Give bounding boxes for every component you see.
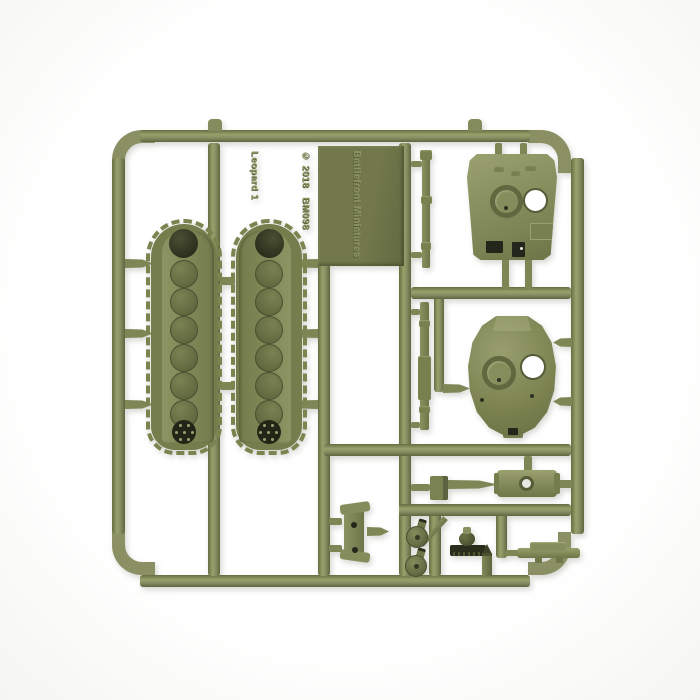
gate [443,384,470,393]
mg-sight [463,527,471,534]
bustle-notch [508,428,518,435]
drive-sprocket [172,420,196,444]
road-wheel [255,260,283,288]
track-run-right [236,224,302,450]
periscope [525,165,536,171]
travel-lock-foot [556,557,563,563]
detail-dot [480,398,484,402]
road-wheel [170,316,198,344]
storage-bin [497,470,557,497]
crew-hatch-lower [405,555,427,577]
frame-bar-right [571,158,584,534]
periscope [494,166,504,172]
gate [553,338,572,347]
turret-top [468,316,556,436]
brand-text: Battlefront Miniatures [348,151,365,263]
gate [411,252,422,258]
sprue-nub-left [208,119,222,131]
commander-cupola-ring [490,185,523,218]
gate [411,309,420,315]
shell-body [482,553,492,576]
gate [367,527,389,536]
engine-panel [530,223,555,240]
gate [411,161,422,167]
open-hatch-hole [523,188,548,213]
intake-grille [512,242,525,257]
frame-corner-bl [112,532,155,575]
sprue-nub-right [468,119,482,131]
hull-top-panel [467,154,557,260]
idler-wheel [169,229,198,258]
gate [411,422,420,428]
intake-grille [486,241,503,253]
barrel-band [420,150,432,160]
frame-bar-left [112,158,125,534]
gate [553,397,572,406]
runner-mid [318,258,330,576]
mantlet-hole [351,522,357,528]
track-run-left [151,224,217,450]
road-wheel [170,372,198,400]
detail-dot [530,394,534,398]
road-wheel [170,260,198,288]
bin-hole [519,476,534,491]
frame-bar-bottom [140,575,530,587]
gate [329,518,342,525]
small-block-part [430,476,448,500]
detail-dot [520,247,523,250]
mantlet-flange-top [339,501,370,515]
drive-sprocket [257,420,281,444]
crossbar-middle [324,444,571,456]
crossbar-lower [399,504,571,516]
road-wheel [170,288,198,316]
road-wheel [170,344,198,372]
mantlet-facet [493,316,532,331]
barrel-band [421,242,431,250]
crew-hatch-upper [406,526,428,548]
travel-lock-foot [535,557,542,563]
frame-bar-top [140,130,530,142]
barrel-band [419,406,430,413]
barrel-band [419,320,430,327]
runner-turret-left [434,296,444,392]
bin-cap [494,473,499,494]
muzzle-brake-assembly [450,545,486,556]
mg-drum [459,532,475,546]
gun-barrel-upper [422,150,430,268]
gate [524,456,532,471]
commander-cupola-ring [482,356,516,390]
mantlet-hole [352,547,358,553]
gate [502,256,509,289]
sprue-photo: Battlefront Miniatures © 2018 BM098 Leop… [0,0,700,700]
road-wheel [255,288,283,316]
road-wheel [255,316,283,344]
label-plate: Battlefront Miniatures © 2018 BM098 Leop… [318,146,404,266]
barrel-band [421,196,432,204]
open-hatch-hole [520,354,546,380]
bin-cap [554,473,560,494]
gate [448,480,498,489]
road-wheel [255,372,283,400]
fume-extractor [418,356,431,400]
periscope [511,170,520,176]
gate [525,256,532,289]
travel-lock-top [530,542,566,551]
runner-bottom-a [429,510,441,576]
idler-wheel [255,229,284,258]
crossbar-upper [411,287,571,299]
road-wheel [255,344,283,372]
gate [411,484,430,491]
